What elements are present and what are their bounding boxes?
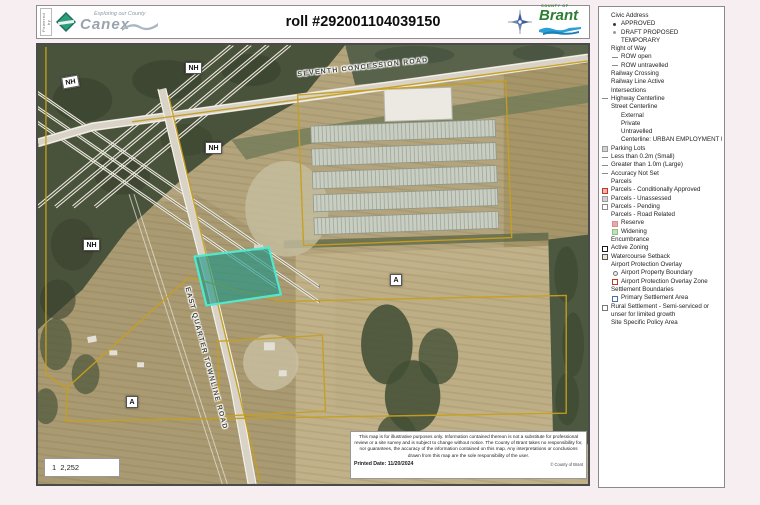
highway-centerline-icon [602, 95, 611, 103]
zoning-label-nh: NH [185, 62, 202, 74]
watercourse-setback-icon [602, 253, 611, 261]
legend-item: Accuracy Not Set [602, 170, 722, 178]
legend-item: Highway Centerline [602, 95, 722, 103]
spacer [602, 87, 611, 95]
legend-item: Railway Line Active [602, 78, 722, 86]
county-name: Brant [539, 8, 581, 23]
printed-date: Printed Date: 11/20/2024 [354, 461, 413, 467]
legend-item: Widening [602, 228, 722, 236]
map-viewport: SEVENTH CONCESSION ROAD EAST QUARTER TOW… [36, 43, 590, 486]
legend-item: Greater than 1.0m (Large) [602, 161, 722, 169]
copyright-note: © County of Brant [550, 462, 583, 467]
map-title-bar: Powered by Exploring our County Canex ro… [36, 5, 590, 39]
legend-item: Private [602, 120, 722, 128]
legend-group-settlement-boundaries: Settlement Boundaries [602, 286, 722, 294]
powered-by-label: Powered by [40, 8, 52, 36]
legend-item: Watercourse Setback [602, 253, 722, 261]
spacer [602, 211, 611, 219]
legend-item: Parcels - Conditionally Approved [602, 186, 722, 194]
zoning-label-a: A [390, 274, 402, 286]
spacer [602, 319, 611, 327]
county-of-brant-logo: COUNTY OF Brant [539, 5, 581, 39]
scale-indicator: 1 2,252 [44, 458, 120, 477]
legend-item: Parcels - Pending [602, 203, 722, 211]
legend-item: Reserve [602, 219, 722, 227]
legend-group-street-centerline: Street Centerline [602, 103, 722, 111]
legend-item: Centerline: URBAN EMPLOYMENT LOC [602, 136, 722, 144]
compass-rose-icon [508, 10, 532, 34]
legend-item: Encumbrance [602, 236, 722, 244]
gis-logo: Powered by Exploring our County Canex [37, 8, 218, 36]
parcels-unassessed-icon [602, 195, 611, 203]
legend-item: Airport Protection Overlay Zone [602, 278, 722, 286]
gis-logo-diamond-icon [55, 11, 77, 33]
spacer [602, 286, 611, 294]
legend-item: Less than 0.2m (Small) [602, 153, 722, 161]
accuracy-not-set-icon [602, 170, 611, 178]
widening-icon [612, 228, 621, 236]
active-zoning-icon [602, 244, 611, 252]
legend-group-airport-protection-overlay: Airport Protection Overlay [602, 261, 722, 269]
legend-group-parcels: Parcels [602, 178, 722, 186]
legend-item: Primary Settlement Area [602, 294, 722, 302]
legend-panel: Civic Address APPROVED DRAFT PROPOSED TE… [598, 6, 725, 488]
zoning-label-nh: NH [83, 239, 100, 251]
gis-logo-swoosh-icon [122, 20, 158, 32]
spacer [612, 120, 621, 128]
legend-group-civic-address: Civic Address [602, 12, 722, 20]
greater-than-10m-icon [602, 161, 611, 169]
disclaimer-text: This map is for illustrative purposes on… [354, 434, 583, 459]
legend-item: Parcels - Unassessed [602, 195, 722, 203]
legend-item: Rural Settlement - Semi-serviced or unse… [602, 302, 722, 319]
disclaimer-box: This map is for illustrative purposes on… [350, 431, 587, 479]
reserve-icon [612, 219, 621, 227]
primary-settlement-area-icon [612, 294, 621, 302]
brant-logo-waves-icon [539, 27, 581, 35]
legend-group-right-of-way: Right of Way [602, 45, 722, 53]
airport-property-boundary-icon [612, 269, 621, 277]
parking-lots-icon [602, 145, 611, 153]
highlighted-parcel [195, 248, 281, 306]
zoning-label-nh: NH [205, 142, 222, 154]
spacer [602, 45, 611, 53]
legend-item: External [602, 112, 722, 120]
legend-item: Untravelled [602, 128, 722, 136]
spacer [602, 261, 611, 269]
draft-proposed-point-icon [612, 29, 621, 37]
row-open-line-icon [612, 53, 621, 61]
legend-item: DRAFT PROPOSED [602, 29, 722, 37]
legend-group-parcels-road-related: Parcels - Road Related [602, 211, 722, 219]
parcels-pending-icon [602, 203, 611, 211]
legend-item: Railway Crossing [602, 70, 722, 78]
legend-item: ROW open [602, 53, 722, 61]
parcels-conditionally-approved-icon [602, 186, 611, 194]
spacer [612, 37, 621, 45]
legend-item: TEMPORARY [602, 37, 722, 45]
spacer [602, 103, 611, 111]
legend-item: Active Zoning [602, 244, 722, 252]
spacer [612, 136, 621, 144]
spacer [612, 112, 621, 120]
page-title: roll #292001104039150 [218, 14, 508, 30]
less-than-02m-icon [602, 153, 611, 161]
legend-item: Airport Property Boundary [602, 269, 722, 277]
spacer [612, 128, 621, 136]
spacer [602, 12, 611, 20]
legend-item: Parking Lots [602, 145, 722, 153]
spacer [602, 178, 611, 186]
spacer [602, 70, 611, 78]
zoning-label-a: A [126, 396, 138, 408]
spacer [602, 78, 611, 86]
approved-point-icon [612, 20, 621, 28]
spacer [602, 236, 611, 244]
row-untravelled-line-icon [612, 62, 621, 70]
aerial-imagery [38, 45, 588, 484]
rural-settlement-icon [602, 303, 611, 311]
legend-item: Site Specific Policy Area [602, 319, 722, 327]
legend-item: APPROVED [602, 20, 722, 28]
map-canvas: SEVENTH CONCESSION ROAD EAST QUARTER TOW… [38, 45, 588, 484]
legend-item: Intersections [602, 87, 722, 95]
airport-protection-overlay-zone-icon [612, 278, 621, 286]
legend-item: ROW untravelled [602, 62, 722, 70]
